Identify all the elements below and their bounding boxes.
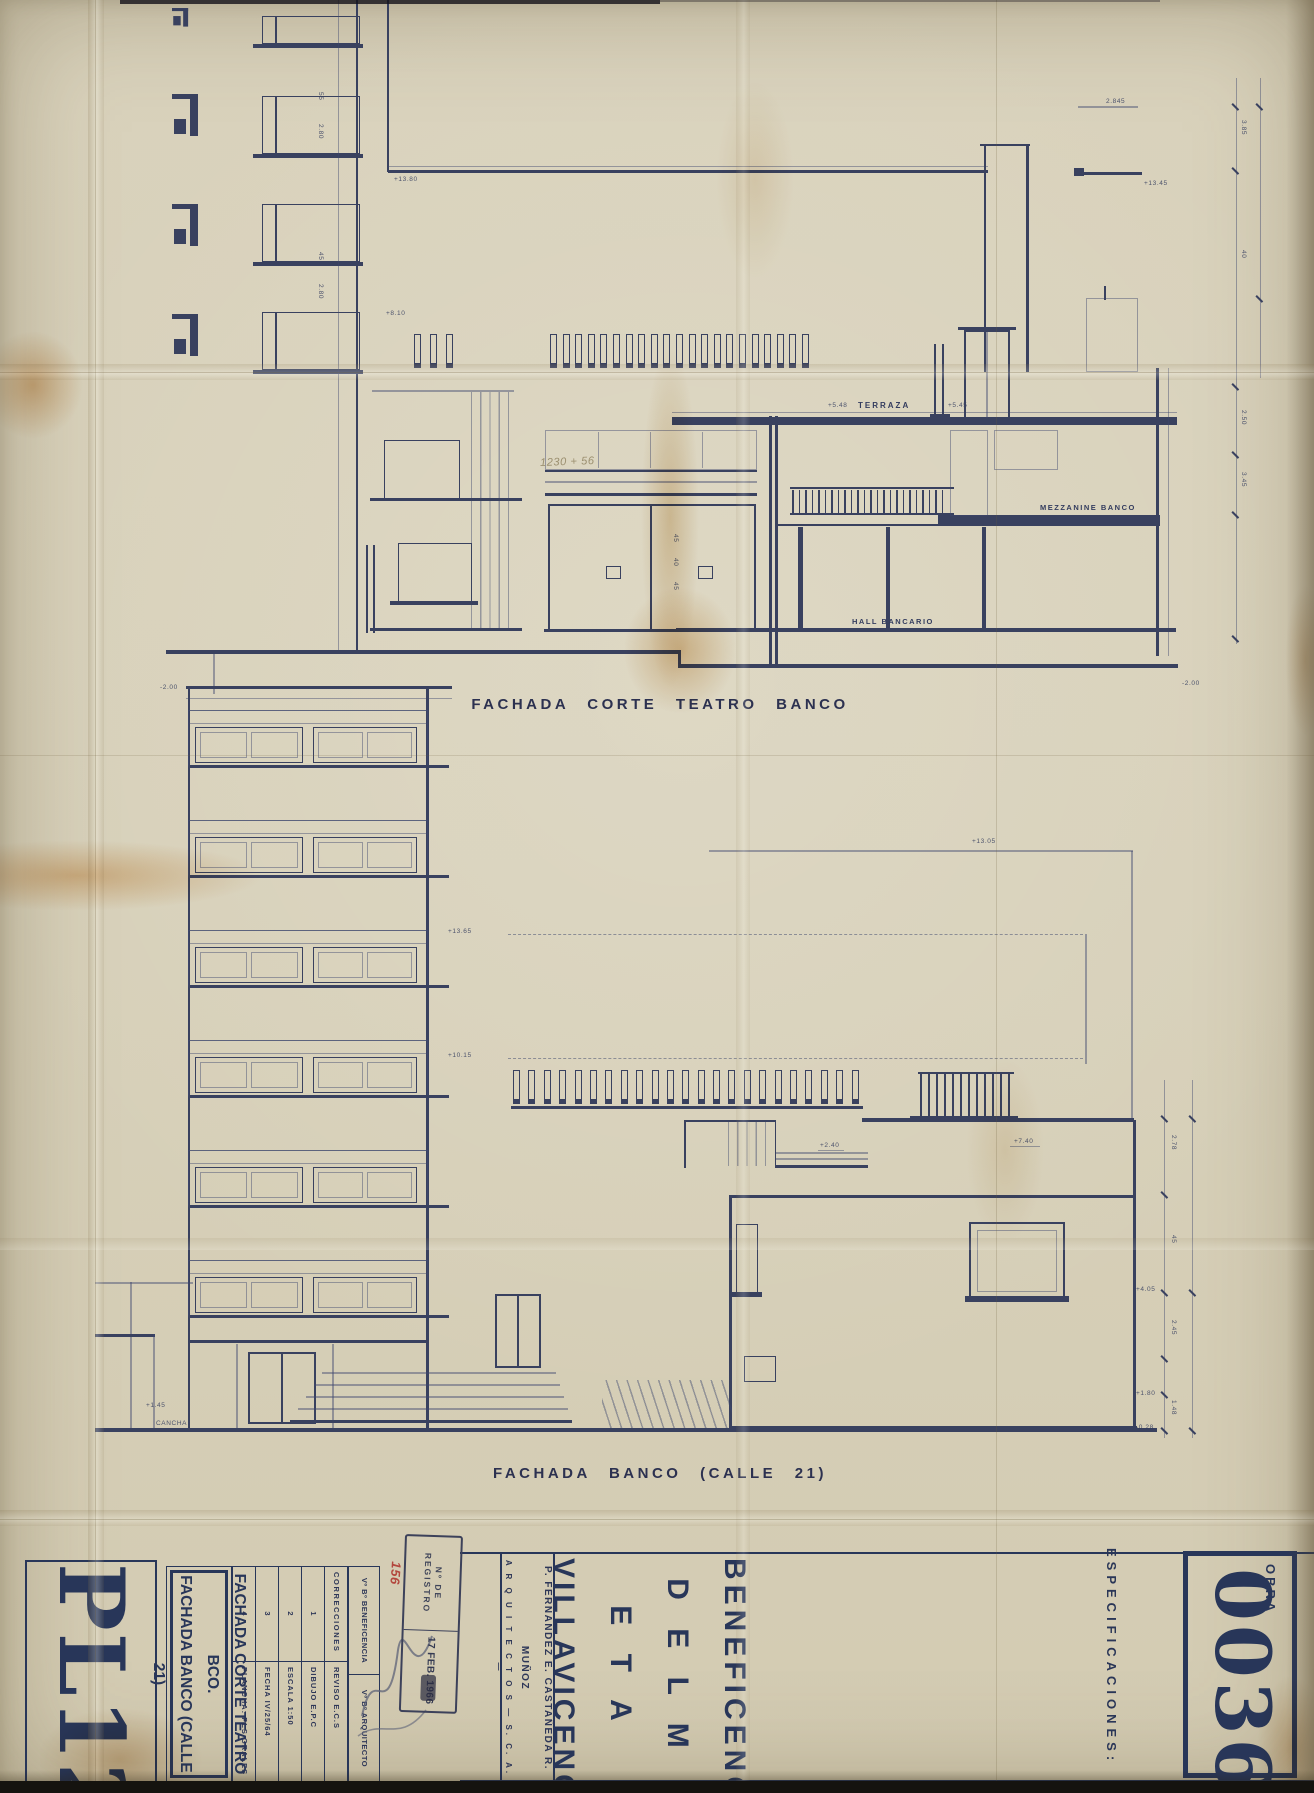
- small-window: [744, 1356, 776, 1382]
- level-label: +13.65: [448, 928, 472, 935]
- level-label: -2.00: [1182, 680, 1200, 687]
- level-label: +5.48: [828, 402, 847, 409]
- level-label: +13.80: [394, 176, 418, 183]
- obra-number: 0036: [1204, 1568, 1280, 1793]
- roof-railing: [918, 1072, 1014, 1118]
- level-label: +4.05: [1136, 1286, 1155, 1293]
- louver-row-long: [550, 334, 809, 368]
- client-name: BENEFICENCIA D E L M E T A VILLAVICENCIO: [554, 1558, 744, 1778]
- registry-stamp: Nº DE REGISTRO 17 FEB. 1966: [399, 1534, 463, 1714]
- mezzanine-label: MEZZANINE BANCO: [1040, 504, 1136, 512]
- level-label: +2.40: [820, 1142, 839, 1149]
- tower-floors: [188, 700, 450, 1320]
- corrections-table: CORRECCIONESREVISO E.C.S 1DIBUJO E.P.C 2…: [232, 1566, 348, 1783]
- ramp-hatch: [602, 1380, 732, 1430]
- sheet-titles: FACHADA CORTE TEATRO BCO.FACHADA BANCO (…: [171, 1566, 227, 1782]
- ground-label: CANCHA: [156, 1420, 187, 1427]
- level-label: +13.45: [1144, 180, 1168, 187]
- level-label: +7.40: [1014, 1138, 1033, 1145]
- door-handle: [698, 566, 713, 579]
- window-profiles: [262, 0, 364, 380]
- specs-label: ESPECIFICACIONES:: [1101, 1548, 1123, 1744]
- level-label: -0.28: [1136, 1424, 1154, 1431]
- mezzanine-railing: [790, 487, 954, 515]
- level-label: +10.15: [448, 1052, 472, 1059]
- level-label: +1.45: [146, 1402, 165, 1409]
- stamp-number: 156: [387, 1561, 404, 1585]
- level-label: +13.05: [972, 838, 996, 845]
- door-handle: [606, 566, 621, 579]
- blueprint-sheet: +13.80 2.845 +13.45 3.85 40 2.50 3.45 55…: [0, 0, 1314, 1793]
- sheet-number: PL12: [36, 1563, 146, 1785]
- level-label: +8.10: [386, 310, 405, 317]
- louver-row: [513, 1070, 859, 1104]
- pilaster-window: [736, 1224, 758, 1296]
- pencil-note: 1230 + 56: [540, 455, 595, 469]
- louver-row-small: [414, 334, 453, 368]
- roof-post: [934, 344, 944, 416]
- obra-box: OBRA 0036: [1183, 1551, 1297, 1778]
- sill-details: [172, 0, 212, 380]
- level-label: -2.00: [160, 684, 178, 691]
- hall-label: HALL BANCARIO: [852, 618, 934, 626]
- level-label: +1.80: [1136, 1390, 1155, 1397]
- level-label: 2.845: [1106, 98, 1125, 105]
- elevation-caption: FACHADA BANCO (CALLE 21): [430, 1466, 890, 1481]
- section-caption: FACHADA CORTE TEATRO BANCO: [440, 697, 880, 712]
- roof-tower: [1086, 298, 1138, 372]
- terraza-label: TERRAZA: [858, 402, 910, 411]
